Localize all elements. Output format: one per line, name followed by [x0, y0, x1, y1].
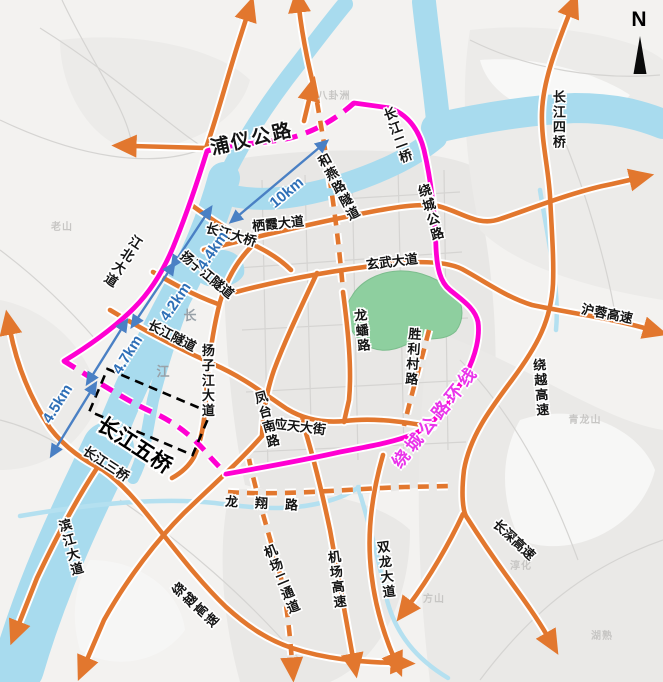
map-canvas — [0, 0, 663, 682]
river-northeast-branch — [424, 2, 438, 120]
nanjing-ring-road-map: 浦仪公路长江二桥绕城公路长江四桥和燕路隧道栖霞大道玄武大道沪蓉高速绕越高速长深高… — [0, 0, 663, 682]
base-terrain — [0, 27, 663, 682]
